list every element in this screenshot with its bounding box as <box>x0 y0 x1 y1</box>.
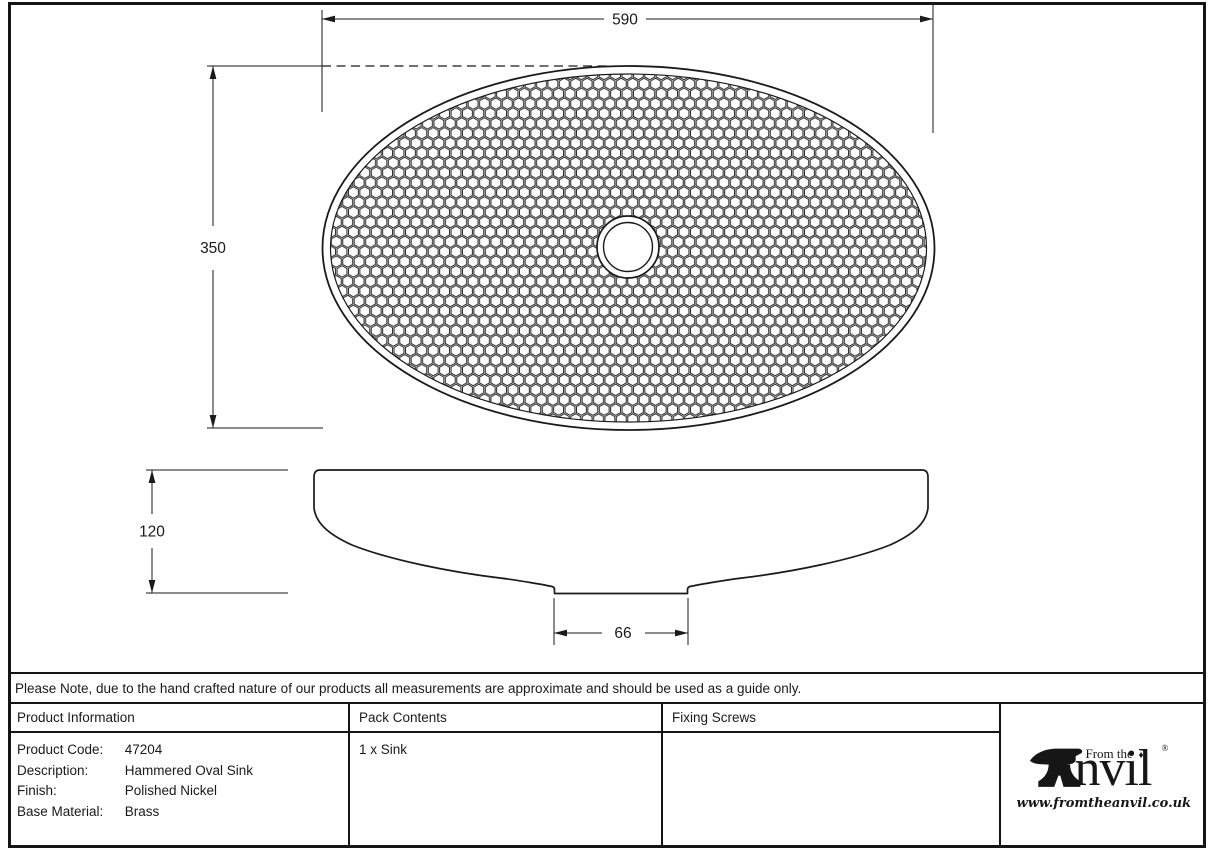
diamond-icon: ♦ <box>1139 750 1144 761</box>
drain-hole-inner <box>604 223 653 272</box>
technical-drawing: 590 350 120 <box>0 0 1214 672</box>
finish-label: Finish: <box>17 781 121 802</box>
dim-depth-120 <box>146 470 288 593</box>
pack-contents-cell: 1 x Sink <box>350 733 663 845</box>
pack-contents-value: 1 x Sink <box>359 740 661 761</box>
dim-depth-label: 120 <box>139 524 165 541</box>
side-view-profile <box>314 470 928 594</box>
description-value: Hammered Oval Sink <box>125 763 253 778</box>
header-pack-contents: Pack Contents <box>350 704 663 733</box>
registered-mark-icon: ® <box>1162 743 1169 753</box>
base-material-label: Base Material: <box>17 802 121 823</box>
product-code-row: Product Code: 47204 <box>17 740 348 761</box>
dim-height-label: 350 <box>200 240 226 257</box>
base-material-row: Base Material: Brass <box>17 802 348 823</box>
measurement-note-row: Please Note, due to the hand crafted nat… <box>8 672 1206 702</box>
logo-website-url: www.fromtheanvil.co.uk <box>1017 796 1191 811</box>
finish-value: Polished Nickel <box>125 783 217 798</box>
dim-base-label: 66 <box>614 625 631 642</box>
product-information-cell: Product Code: 47204 Description: Hammere… <box>8 733 350 845</box>
finish-row: Finish: Polished Nickel <box>17 781 348 802</box>
logo-from-the-text: From the <box>1086 746 1133 762</box>
description-label: Description: <box>17 761 121 782</box>
description-row: Description: Hammered Oval Sink <box>17 761 348 782</box>
base-material-value: Brass <box>125 804 160 819</box>
header-product-information: Product Information <box>8 704 350 733</box>
fixing-screws-cell <box>663 733 1001 845</box>
product-code-value: 47204 <box>125 742 163 757</box>
top-view-oval <box>323 66 935 430</box>
measurement-note-text: Please Note, due to the hand crafted nat… <box>15 681 801 696</box>
dim-width-label: 590 <box>612 12 638 29</box>
brand-logo: nvil From the ♦ ® www.fromtheanvil.co.uk <box>1001 704 1206 845</box>
spec-sheet-page: 590 350 120 <box>0 0 1214 853</box>
brand-logo-inner: nvil From the ♦ ® www.fromtheanvil.co.uk <box>1029 746 1179 818</box>
product-code-label: Product Code: <box>17 740 121 761</box>
header-fixing-screws: Fixing Screws <box>663 704 1001 733</box>
